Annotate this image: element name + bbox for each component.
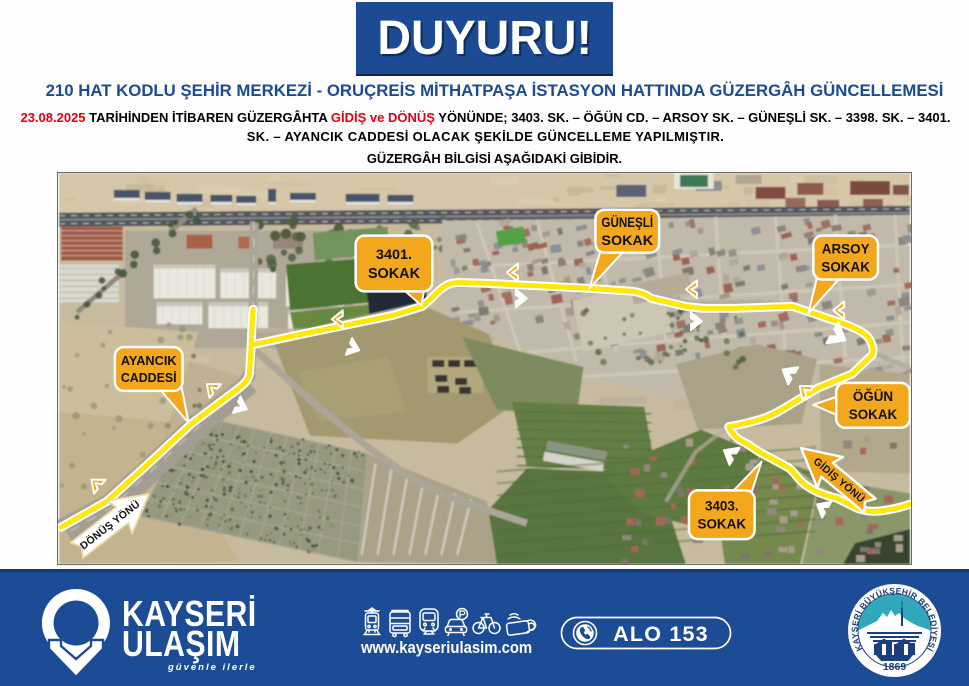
svg-text:1869: 1869 <box>883 661 907 673</box>
svg-text:AYANCIK: AYANCIK <box>121 354 177 368</box>
svg-text:3403.: 3403. <box>705 499 739 514</box>
svg-text:SOKAK: SOKAK <box>849 407 898 422</box>
svg-text:SOKAK: SOKAK <box>821 259 870 274</box>
svg-text:ARSOY: ARSOY <box>822 241 870 256</box>
svg-text:3401.: 3401. <box>376 247 412 263</box>
svg-text:SOKAK: SOKAK <box>698 517 747 532</box>
svg-text:ALO 153: ALO 153 <box>613 622 709 646</box>
svg-text:SOKAK: SOKAK <box>368 266 421 282</box>
svg-text:ÖĞÜN: ÖĞÜN <box>853 389 893 404</box>
svg-text:SOKAK: SOKAK <box>601 233 653 248</box>
svg-text:CADDESİ: CADDESİ <box>121 370 177 385</box>
svg-text:GÜNEŞLİ: GÜNEŞLİ <box>601 215 653 230</box>
